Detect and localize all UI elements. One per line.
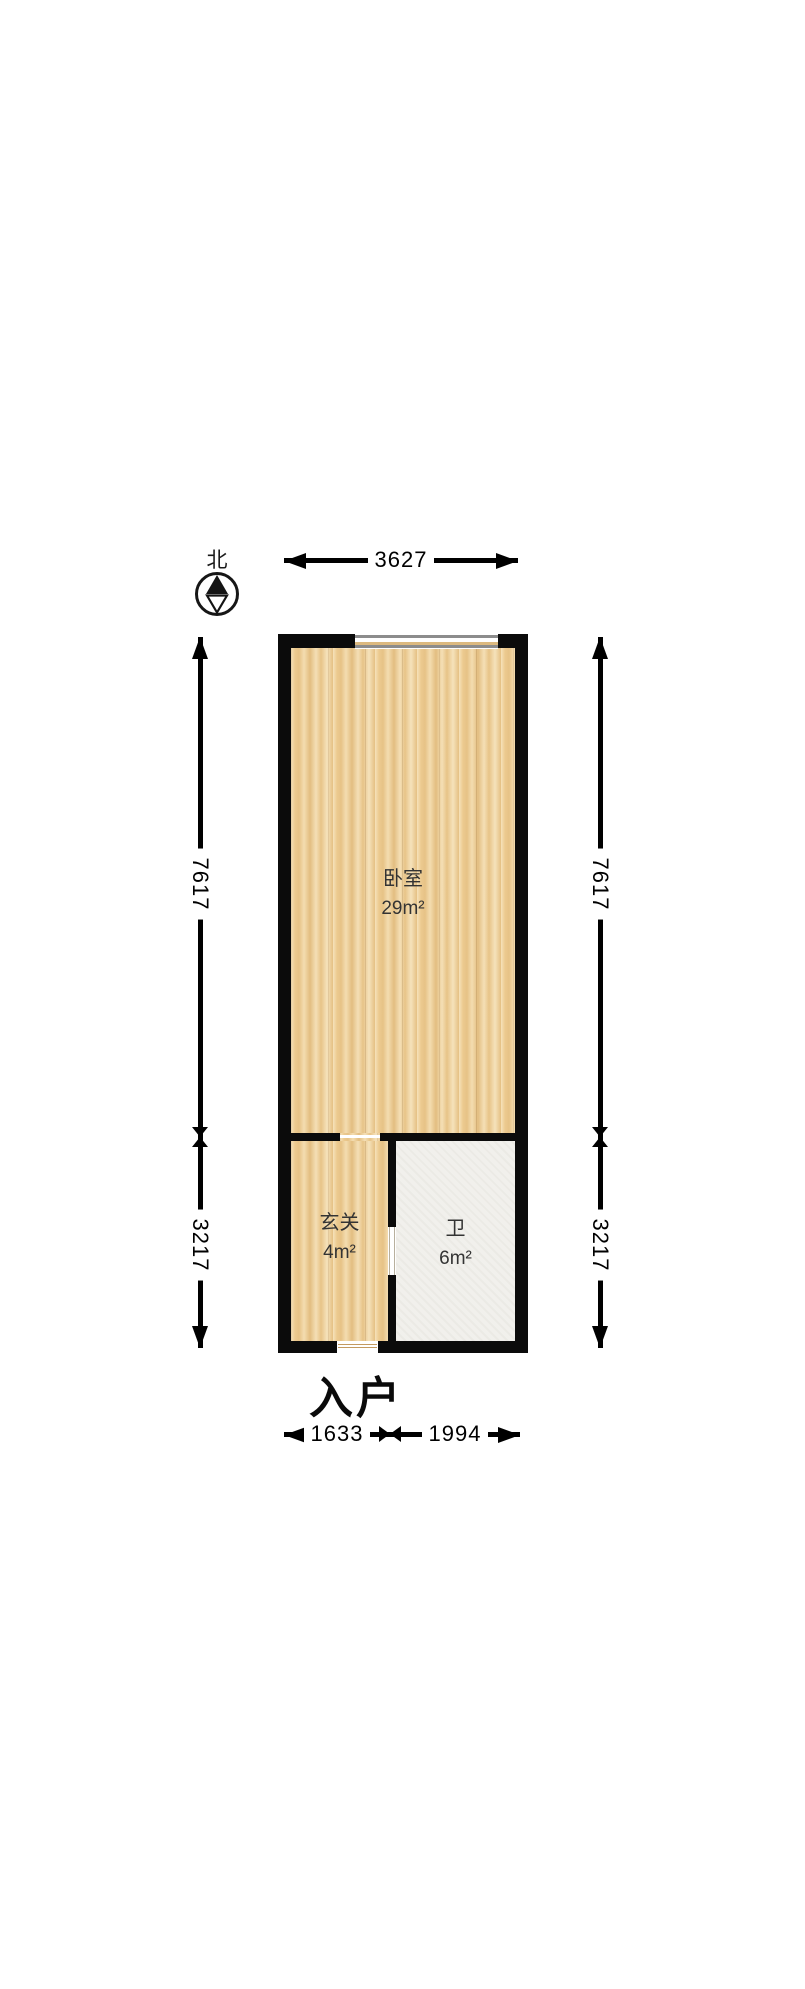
bedroom-door-opening — [340, 1133, 380, 1141]
entrance-label: 入户 — [309, 1362, 403, 1426]
bathroom-area: 6m² — [439, 1248, 472, 1270]
chain-tick-icon — [192, 1137, 208, 1147]
arrowhead-down-icon — [592, 1326, 608, 1348]
chain-tick-icon — [592, 1127, 608, 1137]
dimension-left-upper-value: 7617 — [186, 849, 214, 920]
bathroom-label: 卫 6m² — [396, 1141, 515, 1341]
dimension-right-upper-value: 7617 — [586, 849, 614, 920]
arrowhead-up-icon — [592, 637, 608, 659]
foyer-label: 玄关 4m² — [291, 1141, 388, 1341]
dimension-bottom-right-value: 1994 — [390, 1422, 520, 1446]
room-bedroom: 卧室 29m² — [291, 648, 515, 1133]
dimension-bottom-right: 1994 — [390, 1422, 520, 1446]
compass-north-label: 北 — [187, 544, 247, 574]
dimension-left-lower-value: 3217 — [186, 1210, 214, 1281]
floorplan: 卧室 29m² 玄关 4m² 卫 6m² — [278, 634, 528, 1353]
room-bathroom: 卫 6m² — [396, 1141, 515, 1341]
opening-gap-line — [340, 1135, 380, 1138]
window-north — [355, 634, 498, 649]
bathroom-name: 卫 — [446, 1212, 466, 1241]
window-frame-line — [355, 635, 498, 638]
window-frame-line — [355, 645, 498, 648]
chain-tick-icon — [592, 1137, 608, 1147]
room-foyer: 玄关 4m² — [291, 1141, 388, 1341]
bathroom-door-opening — [388, 1227, 396, 1275]
dimension-top: 3627 — [284, 548, 518, 572]
dimension-right-lower-value: 3217 — [586, 1210, 614, 1281]
foyer-name: 玄关 — [320, 1206, 360, 1235]
compass-icon — [195, 572, 239, 616]
dimension-bottom-left: 1633 — [284, 1422, 390, 1446]
chain-tick-icon — [192, 1127, 208, 1137]
arrowhead-up-icon — [192, 637, 208, 659]
bedroom-area: 29m² — [381, 898, 424, 920]
bathroom-door-leaf — [389, 1227, 395, 1275]
bedroom-name: 卧室 — [383, 862, 423, 891]
bedroom-label: 卧室 29m² — [291, 648, 515, 1133]
entry-threshold — [338, 1344, 377, 1348]
arrowhead-down-icon — [192, 1326, 208, 1348]
entry-door-opening — [337, 1341, 378, 1353]
foyer-area: 4m² — [323, 1242, 356, 1264]
dimension-top-value: 3627 — [284, 548, 518, 572]
floorplan-canvas: 北 3627 7617 3217 7617 3217 — [0, 0, 805, 1989]
north-arrow-icon — [195, 572, 239, 616]
dimension-bottom-left-value: 1633 — [284, 1422, 390, 1446]
